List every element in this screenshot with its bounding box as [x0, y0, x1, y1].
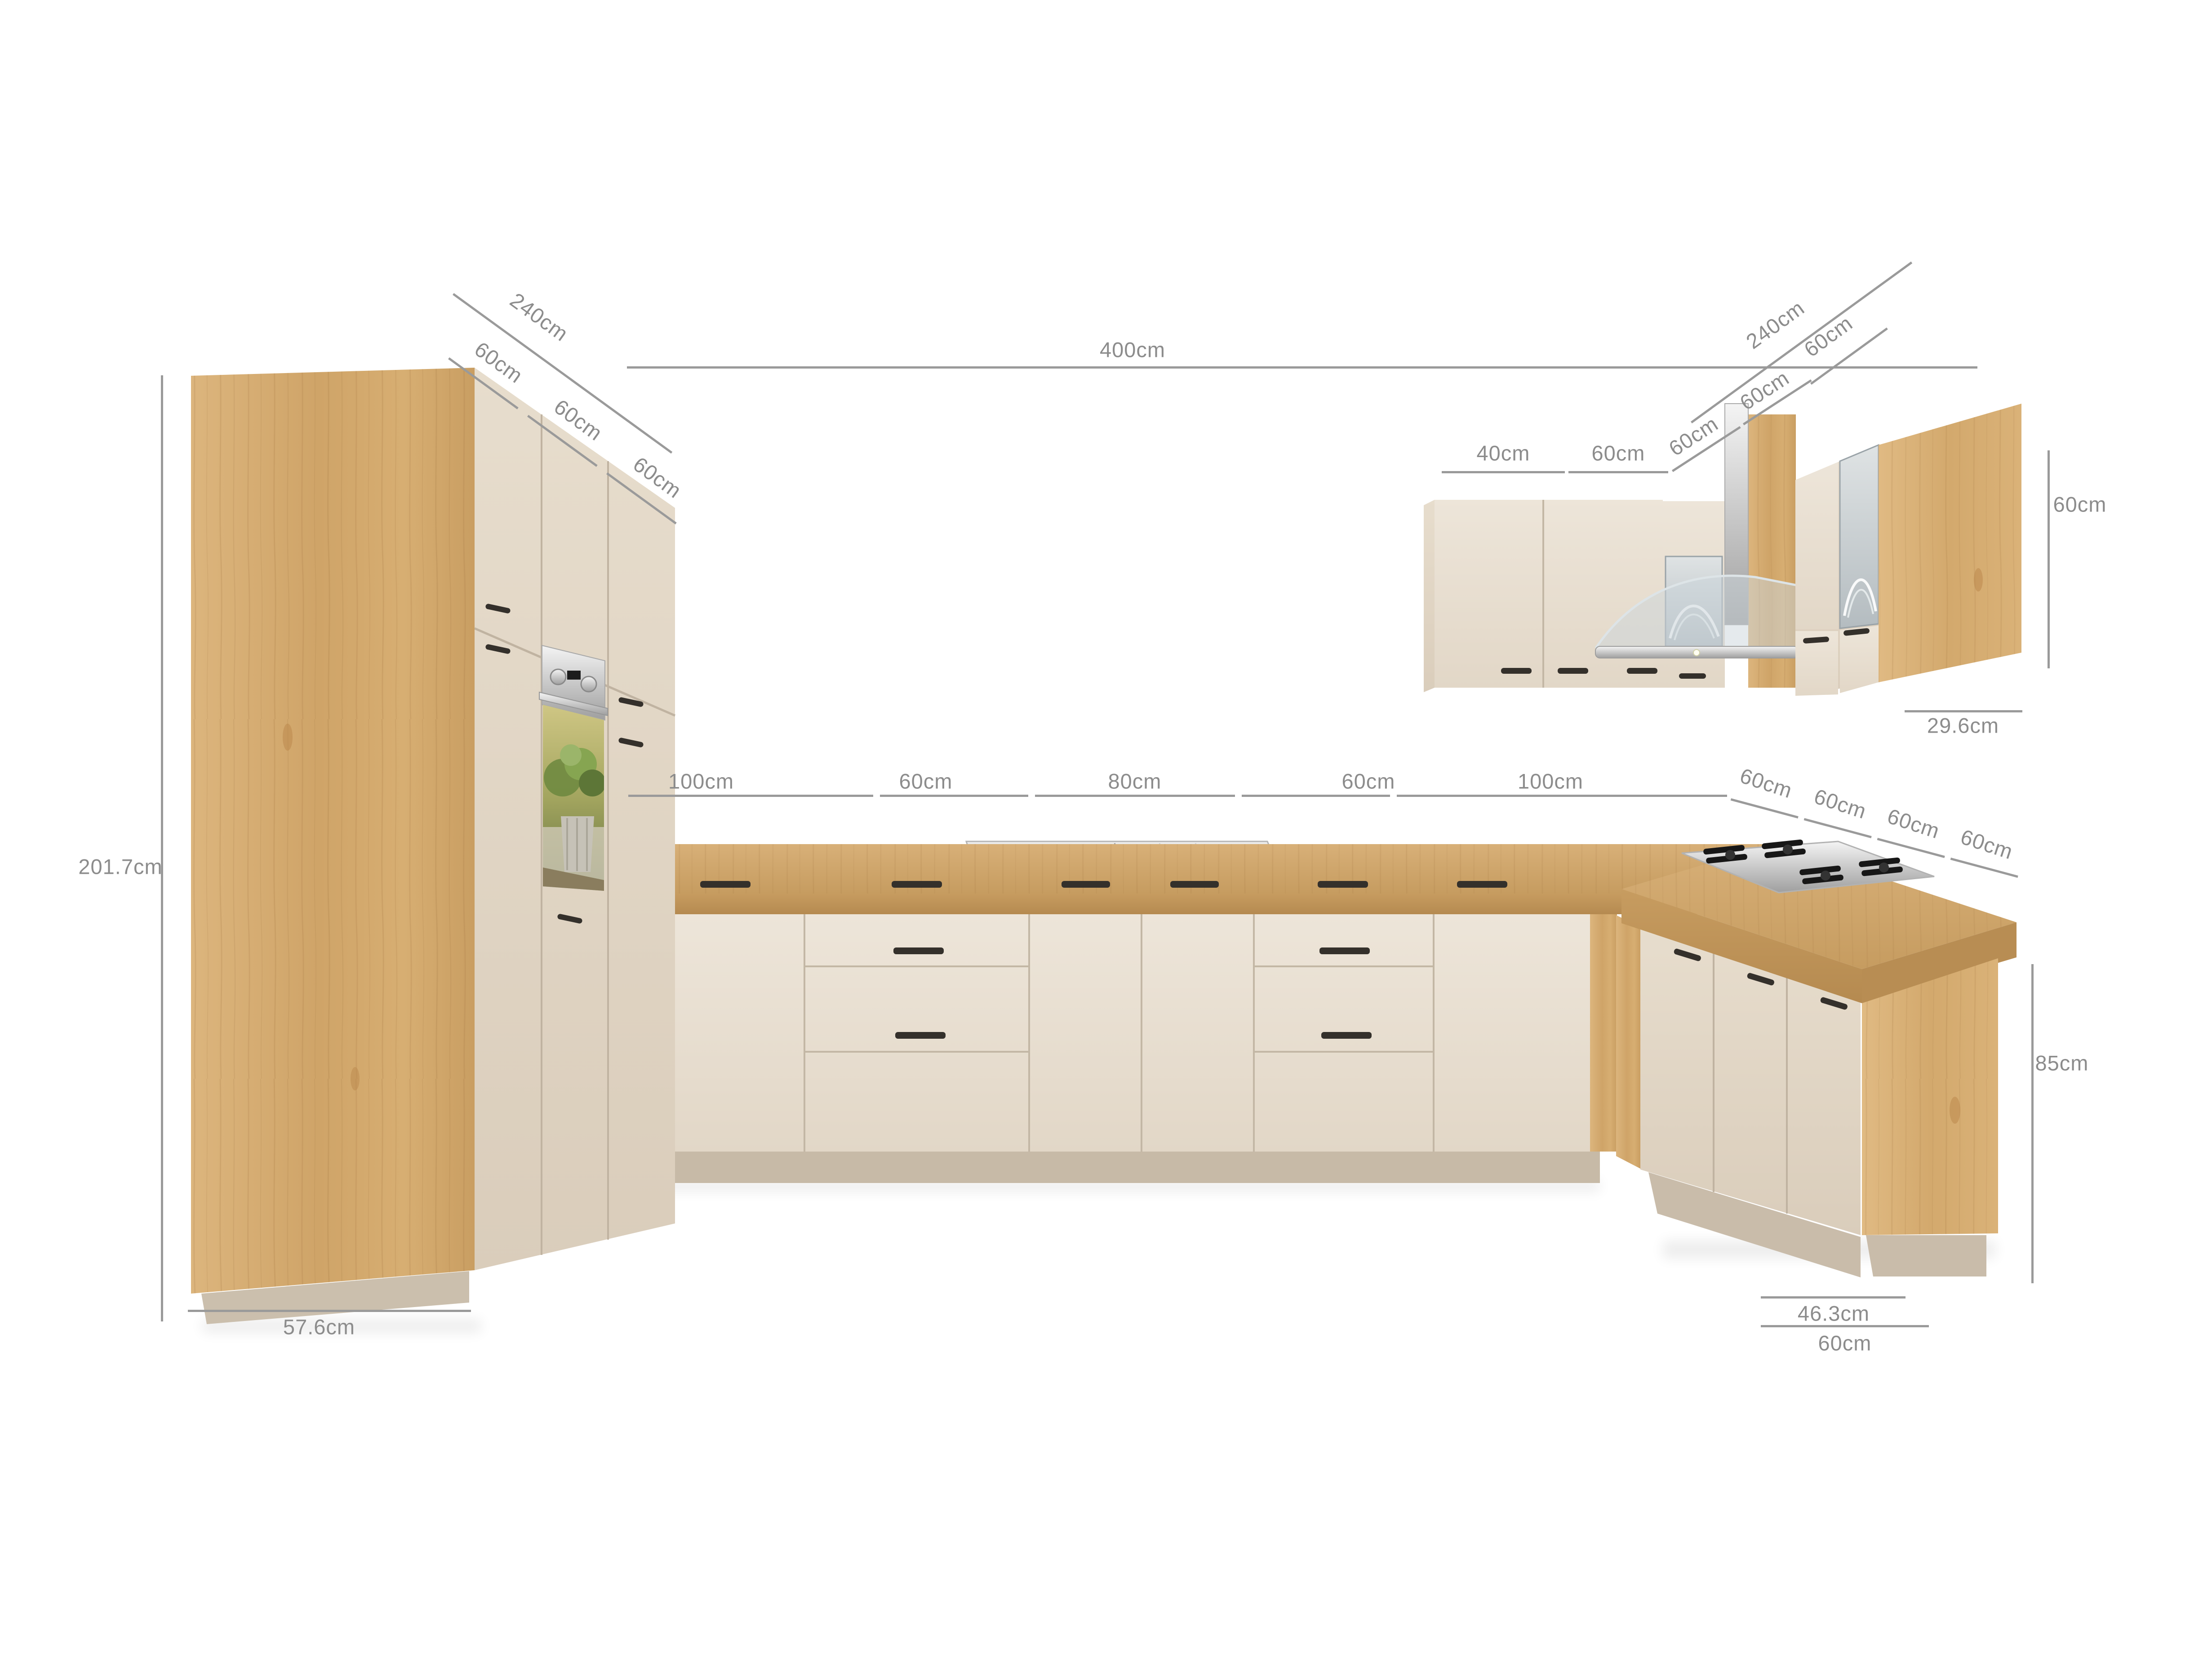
- base-cabinet-fronts: [628, 881, 1617, 1152]
- peninsula-corner-wood: [1616, 915, 1640, 1169]
- dim-label: 80cm: [1108, 769, 1162, 794]
- left-tall-run: [191, 368, 675, 1324]
- dim-label: 46.3cm: [1798, 1301, 1870, 1326]
- back-plinth: [642, 1152, 1600, 1183]
- dim-line-base-60R: [1242, 795, 1390, 797]
- peninsula-run: [1616, 839, 2017, 1277]
- oven-display: [567, 671, 581, 680]
- oven: [539, 645, 608, 894]
- dim-label: 60cm: [1818, 1331, 1872, 1356]
- dim-line-tall-depth: [188, 1310, 471, 1312]
- dim-label: 100cm: [1518, 769, 1583, 794]
- countertop-back: [617, 844, 1794, 914]
- wall-group-left: [1424, 500, 1663, 692]
- dim-line-wall-60: [1568, 471, 1668, 473]
- dim-label: 60cm: [899, 769, 953, 794]
- dim-line-base-60L: [880, 795, 1028, 797]
- oven-knob: [551, 669, 566, 685]
- dim-line-wall-depth: [1905, 710, 2022, 712]
- dim-label: 400cm: [1100, 338, 1165, 362]
- dim-label: 201.7cm: [78, 854, 162, 879]
- tall-fronts: [475, 368, 675, 1270]
- dim-label: 60cm: [1592, 441, 1645, 466]
- dim-line-base-80: [1035, 795, 1235, 797]
- dim-label: 60cm: [1342, 769, 1395, 794]
- tall-wood-end-panel: [191, 368, 475, 1294]
- dim-label: 100cm: [668, 769, 734, 794]
- dim-line-tall-height: [161, 375, 163, 1321]
- dim-line-pen-end-depth: [1761, 1296, 1906, 1299]
- kitchen-dimension-diagram: 240cm 60cm 60cm 60cm 400cm 240cm 60cm 40…: [0, 0, 2212, 1659]
- peninsula-end-plinth: [1866, 1235, 1986, 1276]
- oven-knob: [581, 676, 596, 692]
- dim-label: 40cm: [1477, 441, 1530, 466]
- dim-line-wall-height-60: [2048, 450, 2050, 668]
- kitchen-render: [0, 0, 2212, 1659]
- dim-label: 60cm: [2053, 492, 2107, 517]
- dim-label: 29.6cm: [1927, 713, 1999, 738]
- dim-label: 57.6cm: [283, 1315, 355, 1339]
- dim-line-base-100L: [628, 795, 873, 797]
- dim-label: 85cm: [2035, 1051, 2089, 1076]
- corner-wood-filler: [1590, 914, 1617, 1152]
- peninsula-end-panel: [1862, 958, 1998, 1235]
- wall-group-right: [1795, 404, 2021, 696]
- dim-line-wall-40: [1442, 471, 1565, 473]
- dim-line-worktop-height: [2031, 964, 2034, 1283]
- dim-line-base-100R: [1397, 795, 1727, 797]
